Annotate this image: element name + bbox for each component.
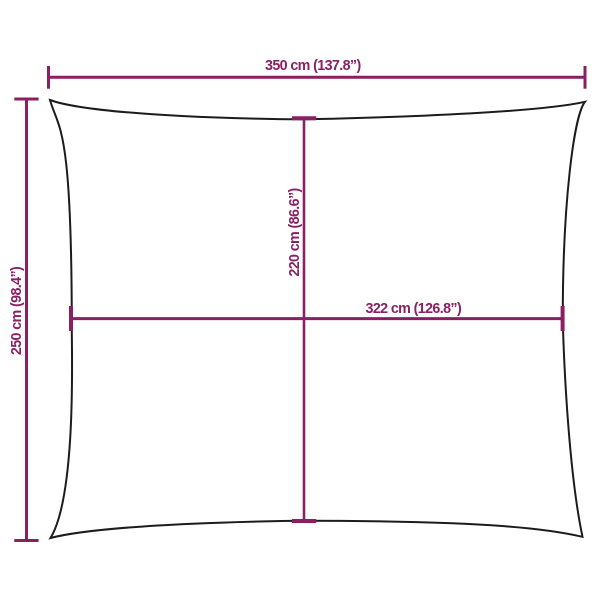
svg-text:220 cm (86.6”): 220 cm (86.6”) [287, 188, 303, 277]
svg-text:250 cm (98.4”): 250 cm (98.4”) [9, 266, 25, 355]
svg-text:350 cm (137.8”): 350 cm (137.8”) [265, 58, 361, 74]
svg-text:322 cm (126.8”): 322 cm (126.8”) [365, 301, 461, 317]
